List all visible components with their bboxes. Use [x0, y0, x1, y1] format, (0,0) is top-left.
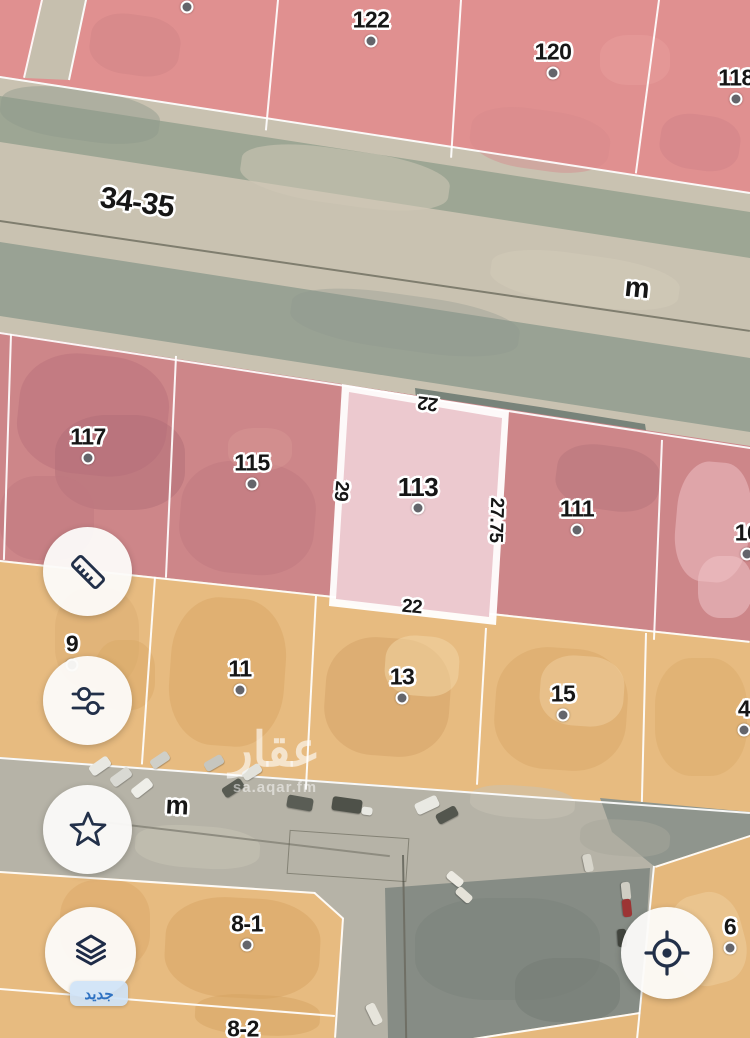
terrain-texture	[698, 556, 750, 618]
layers-new-badge-label: جديد	[84, 985, 113, 1003]
dimension-label-27.75: 27.75	[486, 497, 507, 543]
dimension-label-22: 22	[417, 392, 439, 413]
parcel-marker-dot	[181, 1, 194, 14]
parked-car	[361, 806, 373, 815]
terrain-texture	[655, 658, 747, 776]
parcel-marker-dot	[396, 692, 409, 705]
parcel-label-4[interactable]: 4	[738, 698, 750, 721]
terrain-texture	[237, 136, 453, 220]
dimension-label-29: 29	[331, 480, 352, 502]
parcel-marker-dot	[82, 452, 95, 465]
parked-car	[621, 882, 632, 901]
parcel-marker-dot	[557, 709, 570, 722]
ruler-icon	[60, 544, 116, 600]
terrain-texture	[515, 958, 620, 1022]
parcel-marker-dot	[241, 939, 254, 952]
crosshair-icon	[638, 924, 696, 982]
filters-button[interactable]	[43, 656, 132, 745]
parcel-label-115[interactable]: 115	[234, 452, 270, 475]
parcel-marker-dot	[724, 942, 737, 955]
parcel-marker-dot	[234, 684, 247, 697]
parked-car	[622, 899, 633, 918]
parcel-label-8-1[interactable]: 8-1	[231, 913, 263, 936]
street-label-m: m	[623, 273, 650, 303]
parcel-label-120[interactable]: 120	[535, 41, 572, 64]
parcel-marker-dot	[741, 548, 750, 561]
street-label-34-35: 34-35	[98, 183, 176, 223]
dimension-label-22: 22	[401, 597, 423, 618]
layers-new-badge[interactable]: جديد	[70, 981, 128, 1006]
star-icon	[60, 802, 116, 858]
parcel-label-6[interactable]: 6	[724, 916, 736, 939]
parcel-marker-dot	[547, 67, 560, 80]
parcel-label-111[interactable]: 111	[560, 498, 594, 521]
measure-button[interactable]	[43, 527, 132, 616]
parcel-label-118[interactable]: 118	[718, 67, 750, 90]
parcel-label-11[interactable]: 11	[228, 658, 251, 681]
parcel-label-9[interactable]: 9	[66, 633, 78, 656]
parcel-label-8-2[interactable]: 8-2	[227, 1018, 259, 1038]
parcel-marker-dot	[738, 724, 750, 737]
street-label-m: m	[165, 791, 189, 818]
favorites-button[interactable]	[43, 785, 132, 874]
layers-icon	[62, 924, 120, 982]
locate-button[interactable]	[621, 907, 713, 999]
parcel-label-15[interactable]: 15	[551, 683, 576, 706]
map-canvas[interactable]: 34-35mm12212011811711511311110911131548-…	[0, 0, 750, 1038]
parcel-marker-dot	[730, 93, 743, 106]
parcel-label-13[interactable]: 13	[390, 666, 415, 689]
parcel-marker-dot	[412, 502, 425, 515]
parcel-label-122[interactable]: 122	[353, 9, 390, 32]
parcel-label-10[interactable]: 10	[735, 522, 750, 545]
parcel-marker-dot	[571, 524, 584, 537]
parcel-marker-dot	[365, 35, 378, 48]
parcel-label-117[interactable]: 117	[70, 426, 106, 449]
terrain-texture	[600, 35, 670, 85]
parcel-label-113[interactable]: 113	[398, 474, 438, 500]
parcel-marker-dot	[246, 478, 259, 491]
parking-outline	[287, 830, 410, 882]
sliders-icon	[60, 673, 116, 729]
